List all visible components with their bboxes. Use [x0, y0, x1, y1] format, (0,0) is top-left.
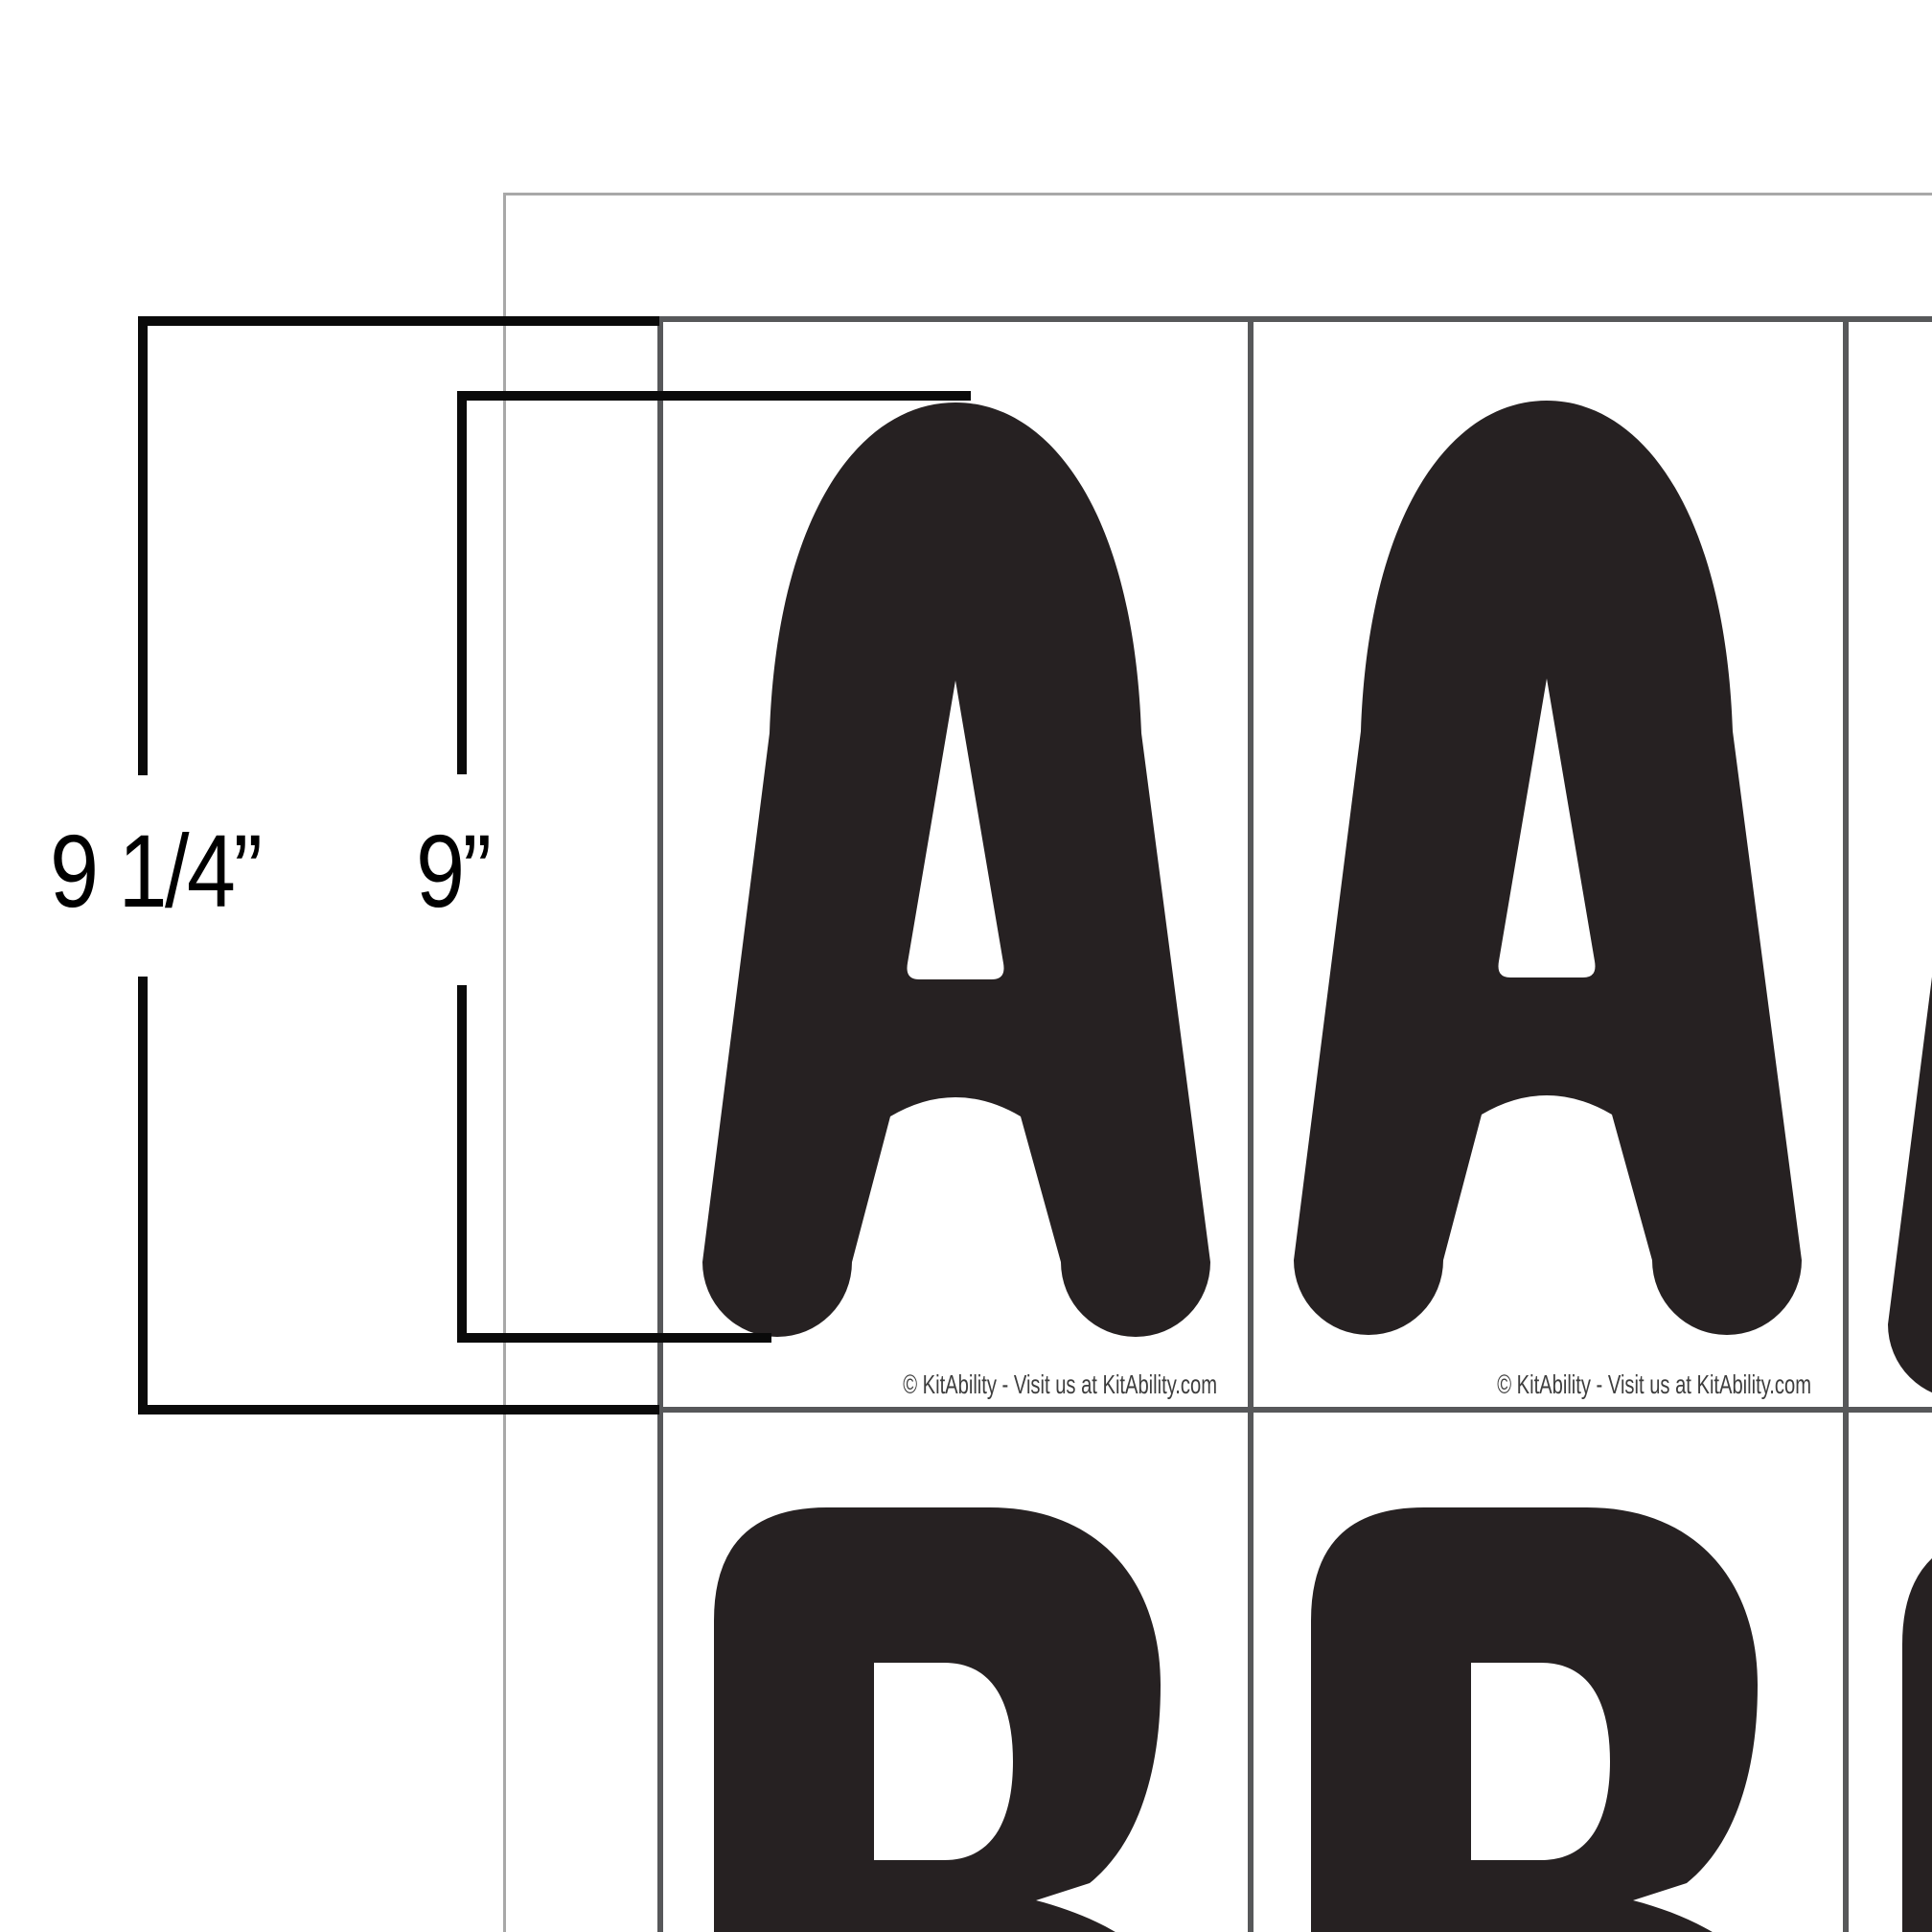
sheet-edge-vertical-line [503, 193, 506, 1932]
outer-bracket-vertical-upper [138, 316, 148, 775]
panel-letter-B-2 [1311, 1507, 1809, 1932]
grid-border-column-1 [657, 316, 663, 1932]
inner-bracket-vertical-upper [457, 391, 467, 774]
panel-letter-A-2 [1294, 401, 1802, 1335]
inner-bracket-bottom-arm [457, 1333, 771, 1343]
sheet-edge-horizontal-line [503, 193, 1932, 195]
panel-letter-B-1 [714, 1507, 1212, 1932]
grid-border-row-divider [657, 1407, 1932, 1413]
copyright-text: © KitAbility - Visit us at KitAbility.co… [790, 1370, 1217, 1399]
inner-bracket-top-arm [457, 391, 971, 401]
letter-kit-diagram: © KitAbility - Visit us at KitAbility.co… [0, 0, 1932, 1932]
outer-bracket-bottom-arm [138, 1405, 659, 1414]
copyright-text: © KitAbility - Visit us at KitAbility.co… [1384, 1370, 1811, 1399]
grid-border-top [657, 316, 1932, 322]
letter-height-dimension-label: 9” [416, 816, 490, 925]
grid-border-column-3 [1843, 316, 1849, 1932]
outer-bracket-vertical-lower [138, 977, 148, 1414]
outer-bracket-top-arm [138, 316, 659, 326]
panel-letter-B-3-partial [1902, 1531, 1932, 1932]
grid-border-column-2 [1248, 316, 1253, 1932]
panel-letter-A-3-partial [1888, 465, 1932, 1399]
inner-bracket-vertical-lower [457, 985, 467, 1343]
panel-letter-A-1 [702, 402, 1210, 1337]
panel-height-dimension-label: 9 1/4” [50, 816, 260, 925]
